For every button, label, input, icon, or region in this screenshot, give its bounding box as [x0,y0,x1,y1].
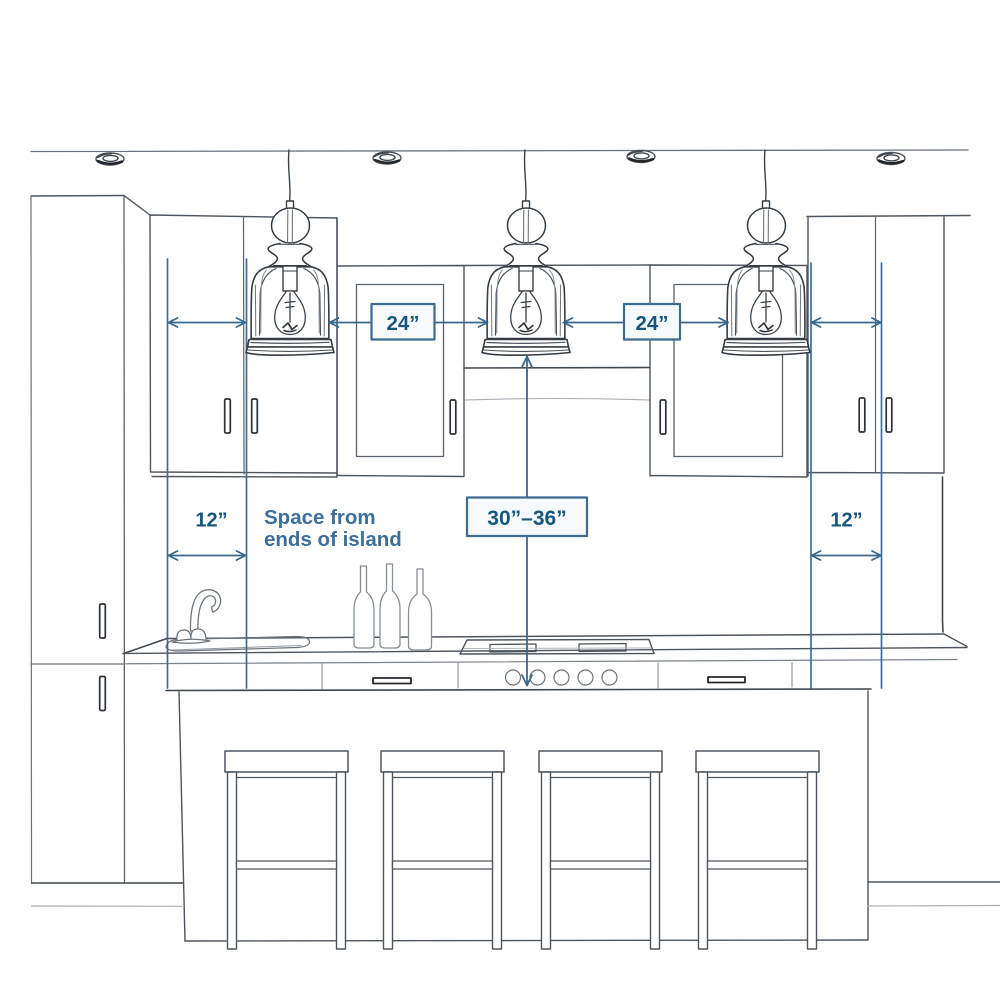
svg-text:ends of island: ends of island [264,528,402,551]
svg-text:Space from: Space from [264,506,376,529]
svg-text:30”–36”: 30”–36” [487,507,566,530]
svg-text:24”: 24” [386,312,419,335]
svg-text:12”: 12” [830,510,862,532]
svg-text:12”: 12” [195,510,227,532]
svg-text:24”: 24” [635,312,668,335]
